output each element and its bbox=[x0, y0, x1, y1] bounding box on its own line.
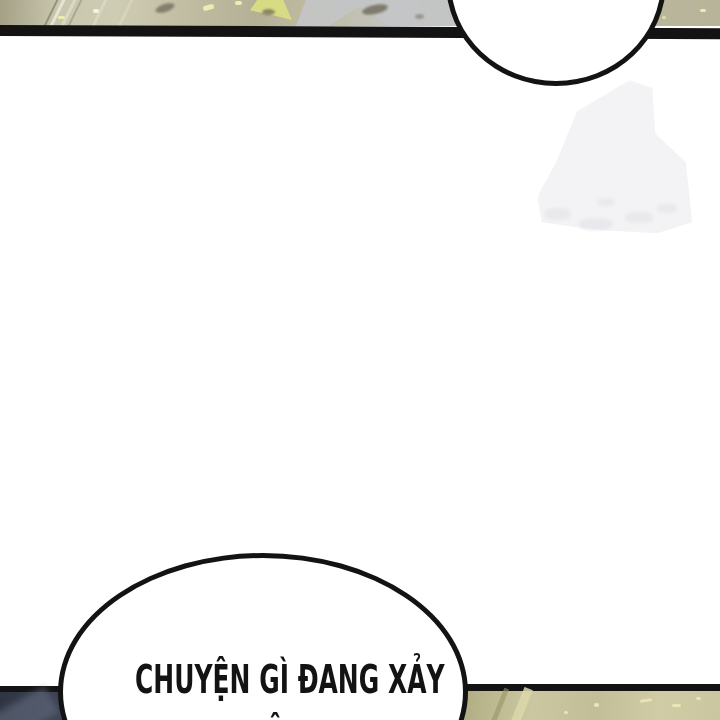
faint-speckle bbox=[625, 212, 653, 223]
art-sparkle bbox=[203, 4, 215, 12]
faint-speckle bbox=[597, 198, 615, 206]
speech-line-2: RA VẬY... bbox=[135, 708, 391, 720]
art-sparkle bbox=[594, 703, 599, 707]
speech-bubble-top bbox=[446, 0, 666, 86]
comic-page: CHUYỆN GÌ ĐANG XẢY RA VẬY... bbox=[0, 0, 720, 720]
art-highlight bbox=[0, 686, 59, 720]
art-smudge bbox=[262, 9, 275, 15]
art-sparkle bbox=[58, 16, 65, 19]
speech-text: CHUYỆN GÌ ĐANG XẢY RA VẬY... bbox=[135, 652, 391, 720]
faint-speckle bbox=[657, 204, 677, 213]
bottom-panel-art-right bbox=[444, 684, 720, 720]
art-sparkle bbox=[640, 698, 652, 703]
speech-bubble-bottom: CHUYỆN GÌ ĐANG XẢY RA VẬY... bbox=[58, 553, 468, 720]
faint-speckle bbox=[545, 208, 571, 220]
art-streak-light bbox=[508, 687, 533, 720]
faint-speckle bbox=[579, 218, 613, 230]
speech-line-1: CHUYỆN GÌ ĐANG XẢY bbox=[135, 652, 391, 708]
art-sparkle bbox=[700, 9, 706, 12]
art-smudge bbox=[154, 1, 175, 15]
art-sparkle bbox=[672, 704, 681, 707]
art-streak-dark bbox=[488, 688, 509, 720]
art-sparkle bbox=[235, 1, 242, 5]
art-sparkle bbox=[564, 711, 568, 714]
art-sparkle bbox=[696, 697, 701, 700]
art-smudge bbox=[415, 14, 424, 19]
art-sparkle bbox=[93, 9, 99, 13]
faint-figure-art bbox=[537, 80, 697, 238]
art-sparkle bbox=[662, 16, 666, 19]
